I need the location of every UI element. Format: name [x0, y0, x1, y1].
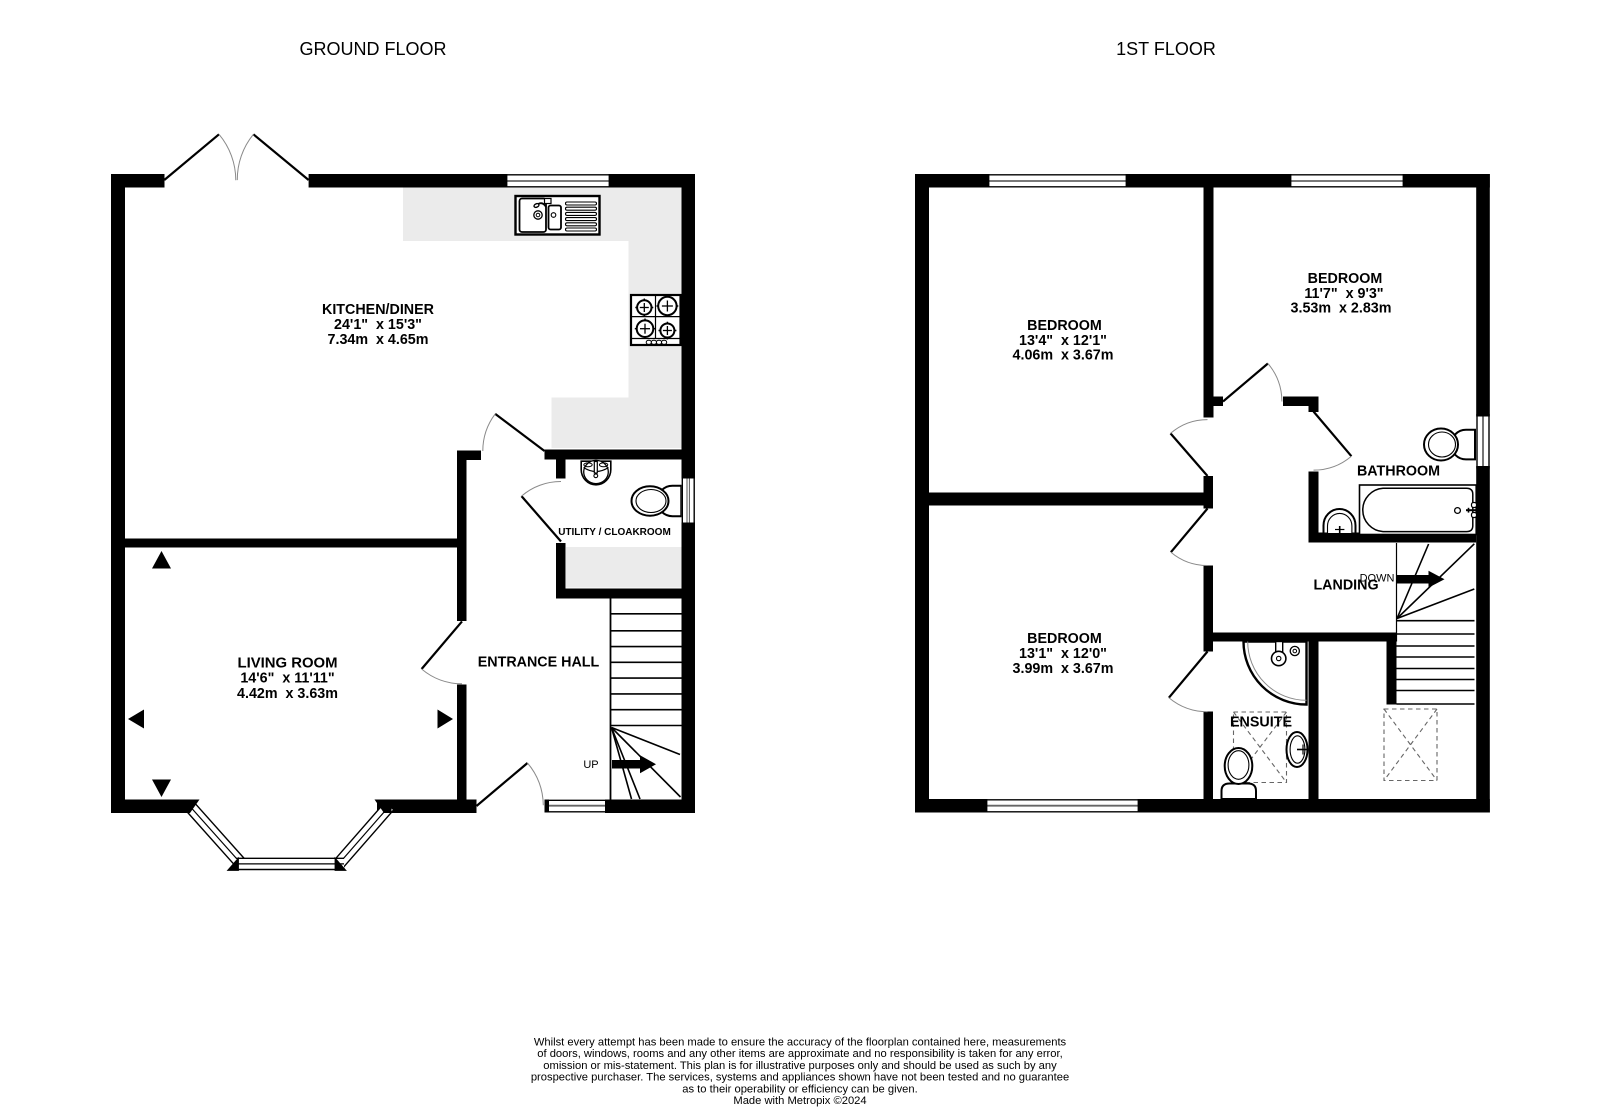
svg-text:omission or mis-statement. Thi: omission or mis-statement. This plan is … — [543, 1060, 1057, 1072]
svg-text:ENTRANCE HALL: ENTRANCE HALL — [478, 655, 600, 671]
svg-text:4.42m x 3.63m: 4.42m x 3.63m — [237, 686, 338, 702]
svg-text:7.34m x 4.65m: 7.34m x 4.65m — [328, 332, 429, 348]
svg-text:UP: UP — [583, 759, 598, 771]
svg-text:BEDROOM: BEDROOM — [1027, 631, 1102, 647]
svg-text:BEDROOM: BEDROOM — [1308, 271, 1383, 287]
svg-text:prospective purchaser. The ser: prospective purchaser. The services, sys… — [531, 1072, 1069, 1084]
svg-text:as to their operability or eff: as to their operability or efficiency ca… — [682, 1083, 917, 1095]
svg-text:1ST FLOOR: 1ST FLOOR — [1116, 39, 1216, 59]
svg-text:4.06m x 3.67m: 4.06m x 3.67m — [1013, 347, 1114, 363]
svg-text:LANDING: LANDING — [1313, 578, 1378, 594]
svg-text:14'6" x 11'11": 14'6" x 11'11" — [240, 671, 334, 687]
svg-text:KITCHEN/DINER: KITCHEN/DINER — [322, 302, 435, 318]
svg-text:Whilst every attempt has been: Whilst every attempt has been made to en… — [534, 1037, 1067, 1049]
svg-text:ENSUITE: ENSUITE — [1230, 715, 1292, 731]
svg-text:LIVING ROOM: LIVING ROOM — [238, 656, 338, 672]
svg-text:GROUND FLOOR: GROUND FLOOR — [299, 39, 446, 59]
svg-text:24'1" x 15'3": 24'1" x 15'3" — [334, 317, 422, 333]
svg-text:of doors, windows, rooms and a: of doors, windows, rooms and any other i… — [537, 1048, 1062, 1060]
svg-text:13'1" x 12'0": 13'1" x 12'0" — [1019, 646, 1107, 662]
svg-text:3.53m x 2.83m: 3.53m x 2.83m — [1291, 301, 1392, 317]
svg-text:3.99m x 3.67m: 3.99m x 3.67m — [1013, 661, 1114, 677]
svg-text:BATHROOM: BATHROOM — [1357, 464, 1440, 480]
svg-text:Made with Metropix ©2024: Made with Metropix ©2024 — [733, 1095, 866, 1107]
svg-text:BEDROOM: BEDROOM — [1027, 318, 1102, 334]
svg-text:UTILITY / CLOAKROOM: UTILITY / CLOAKROOM — [558, 527, 671, 538]
